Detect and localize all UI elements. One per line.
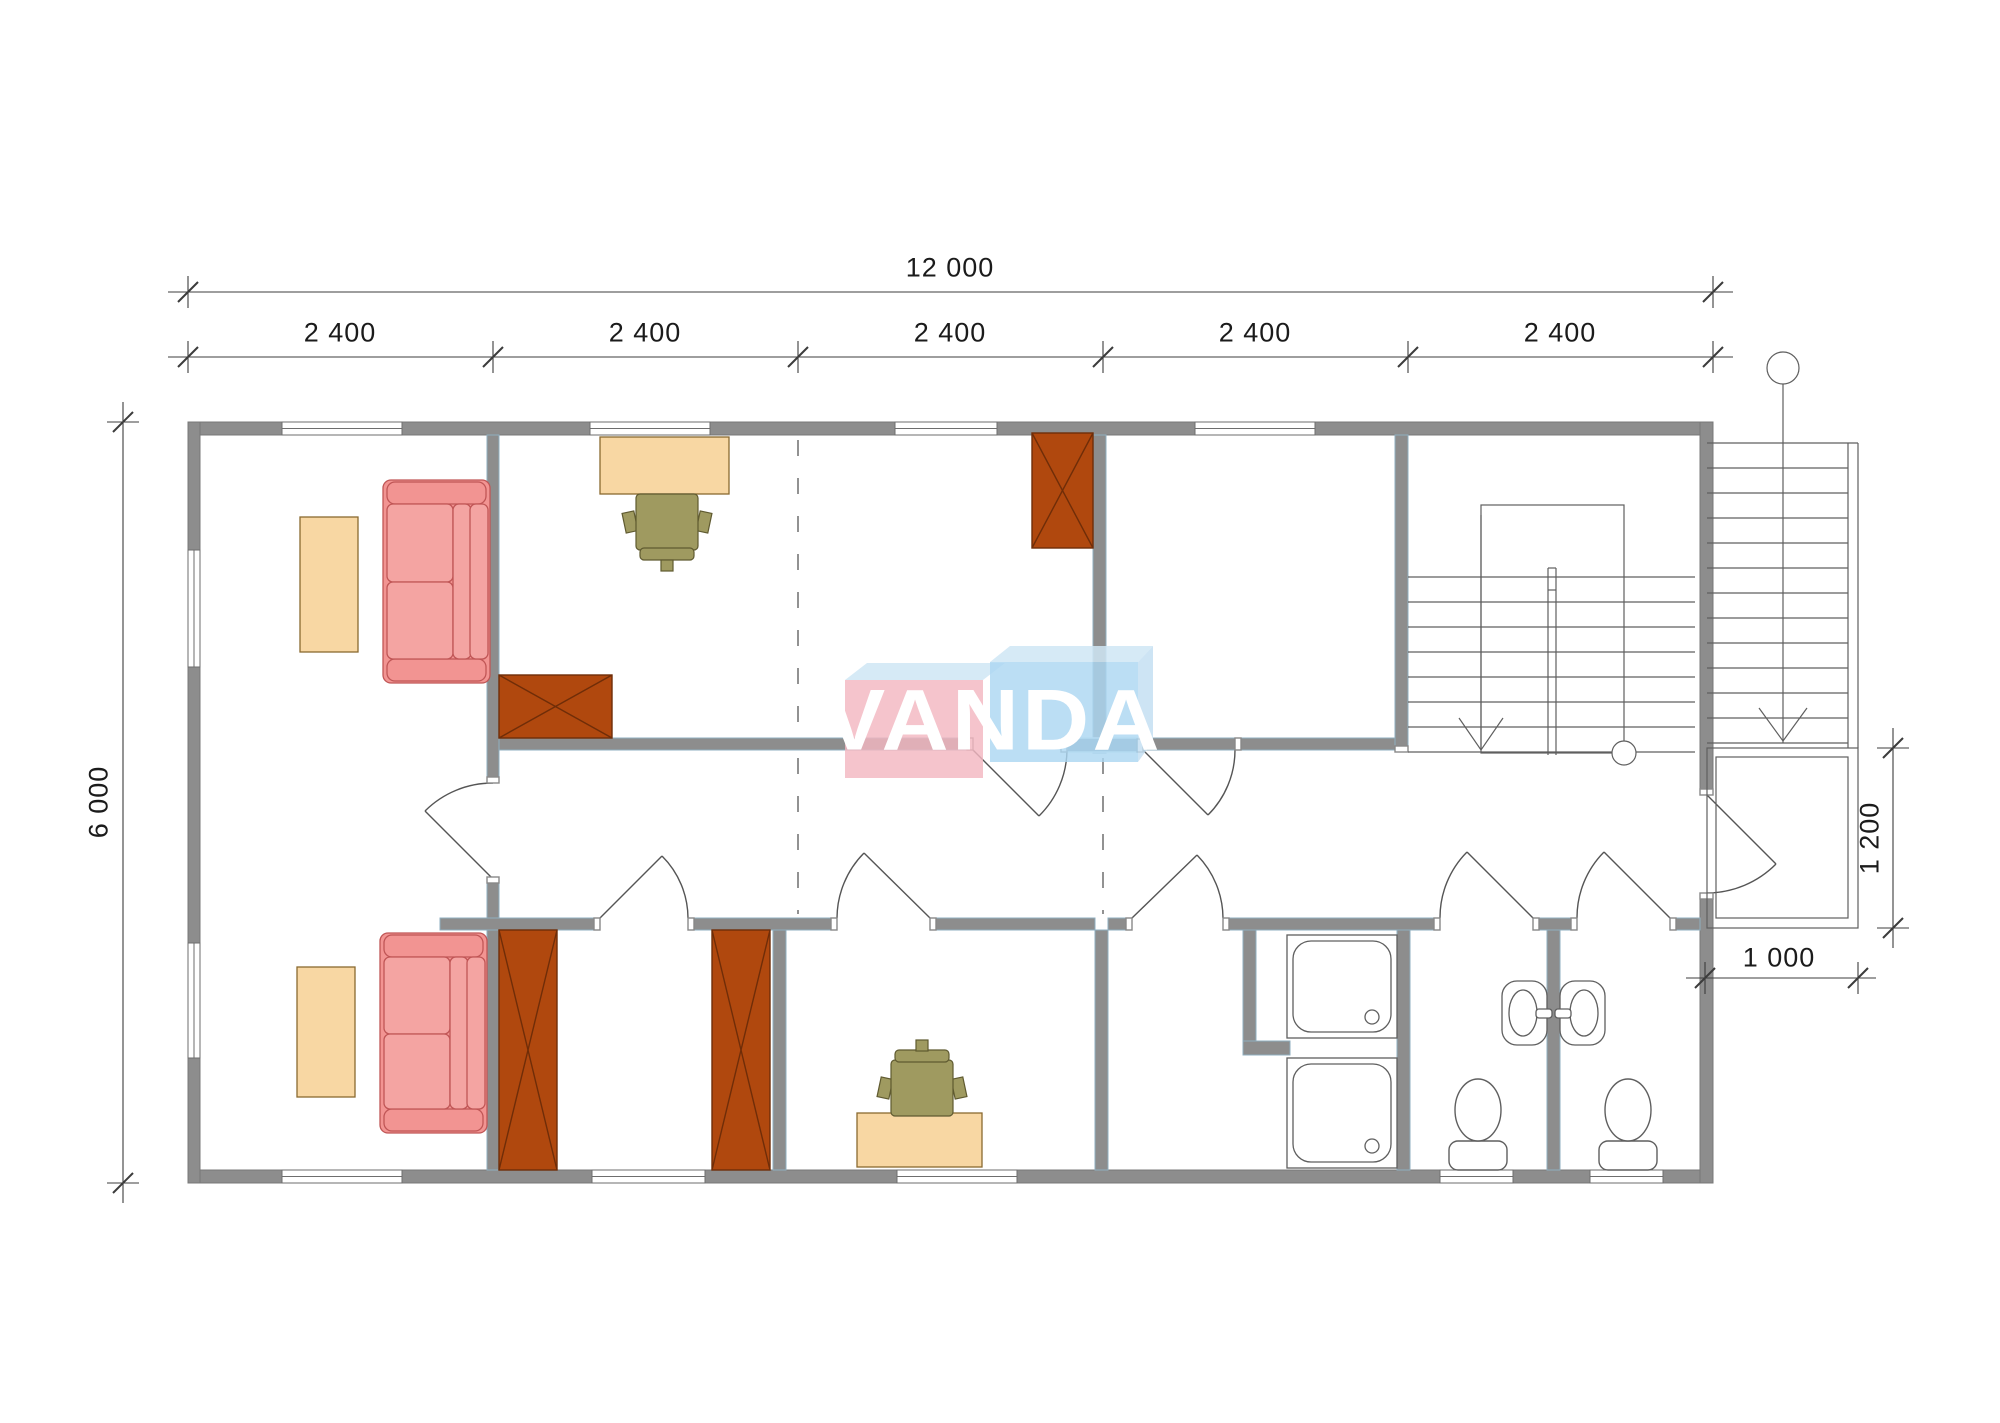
staircase-external — [1707, 352, 1858, 748]
dim-label-module-2: 2 400 — [609, 318, 682, 349]
dim-label-module-4: 2 400 — [1219, 318, 1292, 349]
dim-label-module-5: 2 400 — [1524, 318, 1597, 349]
stair-reference-circle — [1612, 741, 1636, 765]
dim-label-module-1: 2 400 — [304, 318, 377, 349]
window — [282, 1170, 402, 1183]
wall-end-cap — [1395, 746, 1408, 752]
dim-label-landing-width: 1 000 — [1743, 943, 1816, 974]
floor-plan-canvas: 12 000 2 400 2 400 2 400 2 400 2 400 6 0… — [0, 0, 2000, 1423]
door-swing — [1700, 789, 1776, 899]
office-chair — [622, 494, 712, 571]
watermark-text: VANDA — [823, 672, 1163, 771]
door-swing — [1126, 855, 1229, 930]
staircase-internal — [1408, 505, 1695, 765]
shower-tray — [1287, 935, 1397, 1038]
toilet — [1449, 1079, 1507, 1170]
wardrobe — [499, 930, 557, 1170]
window — [895, 422, 997, 435]
window — [590, 422, 710, 435]
coffee-table — [300, 517, 358, 652]
desk — [857, 1113, 982, 1167]
entry-landing — [1707, 748, 1858, 928]
desk — [600, 437, 729, 494]
wardrobe — [712, 930, 770, 1170]
office-chair — [877, 1040, 967, 1116]
dim-label-overall-width: 12 000 — [906, 253, 995, 284]
dim-label-landing-depth: 1 200 — [1855, 802, 1886, 875]
dim-label-module-3: 2 400 — [914, 318, 987, 349]
sofa — [383, 480, 490, 683]
window — [188, 550, 200, 667]
wardrobe — [499, 675, 612, 738]
toilet — [1599, 1079, 1657, 1170]
door-swing — [1571, 852, 1676, 930]
door-swing — [831, 853, 936, 930]
stair-down-arrow — [1759, 384, 1807, 743]
sofa — [380, 933, 487, 1133]
door-swing — [594, 856, 694, 930]
door-swing — [425, 777, 499, 883]
door-swing — [1434, 852, 1539, 930]
dim-label-overall-depth: 6 000 — [84, 766, 115, 839]
stair-down-arrow — [1459, 515, 1503, 750]
watermark-blue-box-top — [990, 646, 1153, 662]
washbasin — [1502, 981, 1552, 1045]
window — [1440, 1170, 1513, 1183]
wardrobe — [1032, 433, 1093, 548]
window — [897, 1170, 1017, 1183]
window — [1590, 1170, 1663, 1183]
window — [1195, 422, 1315, 435]
stair-reference-circle — [1767, 352, 1799, 384]
washbasin — [1555, 981, 1605, 1045]
shower-tray — [1287, 1058, 1397, 1168]
coffee-table — [297, 967, 355, 1097]
window — [592, 1170, 705, 1183]
window — [282, 422, 402, 435]
window — [188, 943, 200, 1058]
